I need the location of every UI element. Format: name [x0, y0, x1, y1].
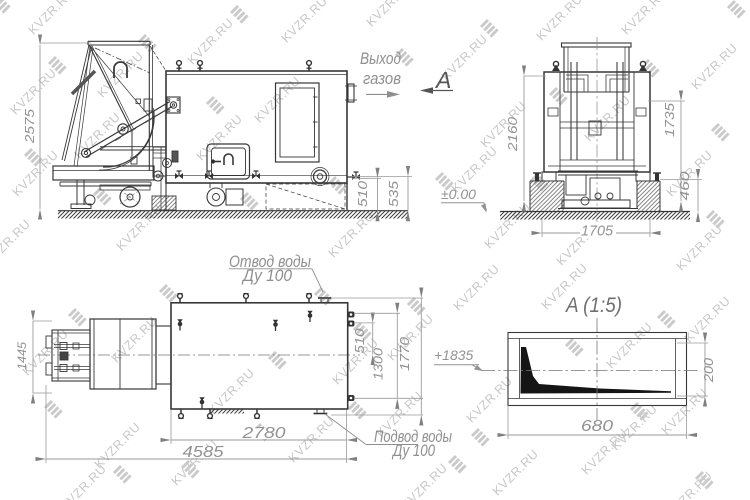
svg-text:KVZR.RU: KVZR.RU	[0, 217, 33, 269]
svg-text:KVZR.RU: KVZR.RU	[478, 99, 530, 151]
svg-text:510: 510	[355, 180, 370, 207]
svg-text:1445: 1445	[15, 342, 29, 370]
svg-text:2780: 2780	[241, 425, 286, 442]
svg-text:A: A	[434, 67, 451, 93]
svg-text:KVZR.RU: KVZR.RU	[659, 386, 711, 438]
svg-text:+1835: +1835	[434, 347, 474, 363]
svg-text:2575: 2575	[22, 108, 37, 144]
svg-text:KVZR.RU: KVZR.RU	[58, 462, 110, 500]
svg-text:4585: 4585	[183, 444, 224, 461]
svg-text:KVZR.RU: KVZR.RU	[26, 0, 78, 37]
svg-text:460: 460	[677, 170, 692, 200]
svg-text:KVZR.RU: KVZR.RU	[194, 112, 246, 164]
svg-text:KVZR.RU: KVZR.RU	[674, 222, 726, 274]
svg-text:KVZR.RU: KVZR.RU	[490, 447, 542, 499]
svg-text:200: 200	[701, 357, 716, 383]
svg-text:KVZR.RU: KVZR.RU	[664, 469, 716, 500]
svg-text:A (1:5): A (1:5)	[564, 293, 622, 317]
svg-text:535: 535	[386, 180, 401, 207]
svg-text:1300: 1300	[371, 347, 386, 380]
svg-text:KVZR.RU: KVZR.RU	[604, 320, 656, 372]
svg-text:KVZR.RU: KVZR.RU	[252, 74, 304, 126]
svg-text:1770: 1770	[397, 336, 412, 371]
svg-text:KVZR.RU: KVZR.RU	[451, 262, 503, 314]
svg-text:±0.00: ±0.00	[441, 186, 476, 202]
svg-text:Выход: Выход	[360, 49, 401, 68]
svg-text:KVZR.RU: KVZR.RU	[482, 200, 534, 252]
svg-text:KVZR.RU: KVZR.RU	[534, 0, 586, 43]
svg-text:KVZR.RU: KVZR.RU	[95, 49, 147, 101]
svg-text:KVZR.RU: KVZR.RU	[689, 41, 741, 93]
svg-text:KVZR.RU: KVZR.RU	[185, 16, 237, 68]
svg-text:1705: 1705	[581, 223, 614, 240]
svg-text:KVZR.RU: KVZR.RU	[72, 110, 124, 162]
svg-text:KVZR.RU: KVZR.RU	[582, 93, 634, 145]
svg-text:KVZR.RU: KVZR.RU	[619, 0, 671, 37]
svg-text:KVZR.RU: KVZR.RU	[286, 414, 338, 466]
svg-text:KVZR.RU: KVZR.RU	[399, 461, 451, 500]
svg-text:2160: 2160	[505, 116, 520, 152]
svg-text:KVZR.RU: KVZR.RU	[682, 294, 734, 346]
svg-text:1735: 1735	[662, 102, 677, 137]
svg-text:510: 510	[352, 328, 367, 354]
svg-text:Ду 100: Ду 100	[391, 441, 435, 460]
svg-text:KVZR.RU: KVZR.RU	[109, 314, 161, 366]
svg-text:газов: газов	[363, 69, 401, 88]
svg-text:KVZR.RU: KVZR.RU	[364, 0, 416, 29]
svg-text:KVZR.RU: KVZR.RU	[279, 0, 331, 45]
svg-text:680: 680	[581, 418, 613, 435]
